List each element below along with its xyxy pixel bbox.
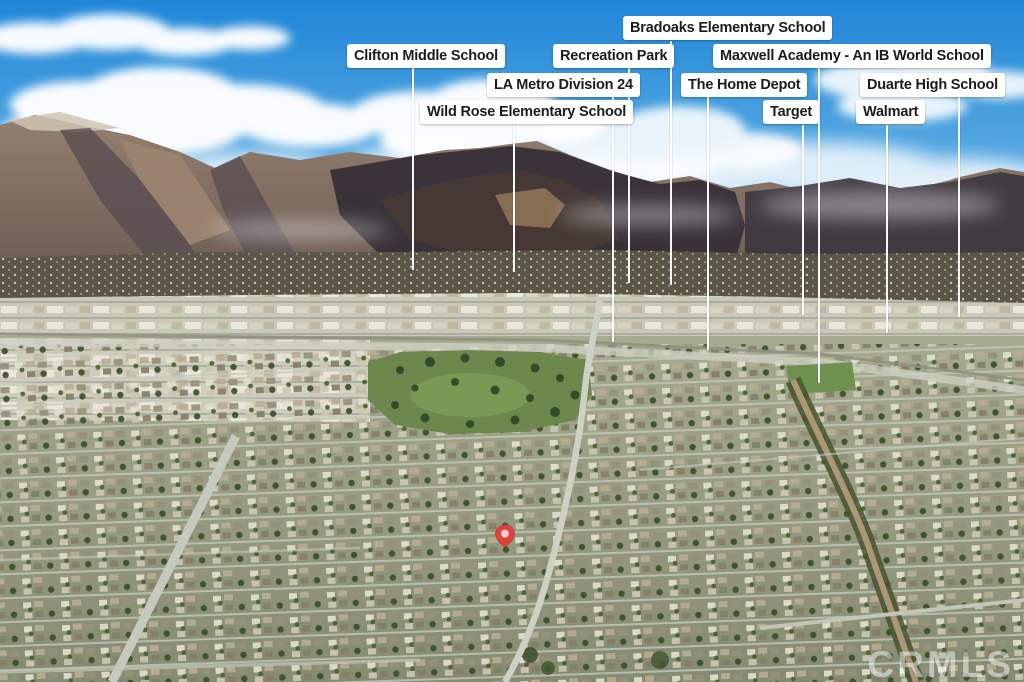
- callout-label: Walmart: [856, 100, 925, 124]
- location-pin: [493, 522, 517, 550]
- callout-line: [958, 97, 960, 317]
- callout-line: [886, 125, 888, 333]
- callout-label: Target: [763, 100, 819, 124]
- callout-line: [412, 67, 414, 270]
- callout-line: [707, 97, 709, 350]
- callout-label: Maxwell Academy - An IB World School: [713, 44, 991, 68]
- callout-line: [513, 124, 515, 272]
- callout-label: Clifton Middle School: [347, 44, 505, 68]
- callout-label: Wild Rose Elementary School: [420, 100, 633, 124]
- callout-label: Bradoaks Elementary School: [623, 16, 832, 40]
- mls-watermark: CRMLS: [867, 648, 1014, 682]
- callout-label: Recreation Park: [553, 44, 674, 68]
- callout-line: [612, 97, 614, 342]
- callout-line: [802, 125, 804, 315]
- callout-label: LA Metro Division 24: [487, 73, 640, 97]
- callout-label: Duarte High School: [860, 73, 1005, 97]
- callout-label: The Home Depot: [681, 73, 807, 97]
- aerial-photo: Bradoaks Elementary SchoolClifton Middle…: [0, 0, 1024, 682]
- callout-line: [670, 41, 672, 285]
